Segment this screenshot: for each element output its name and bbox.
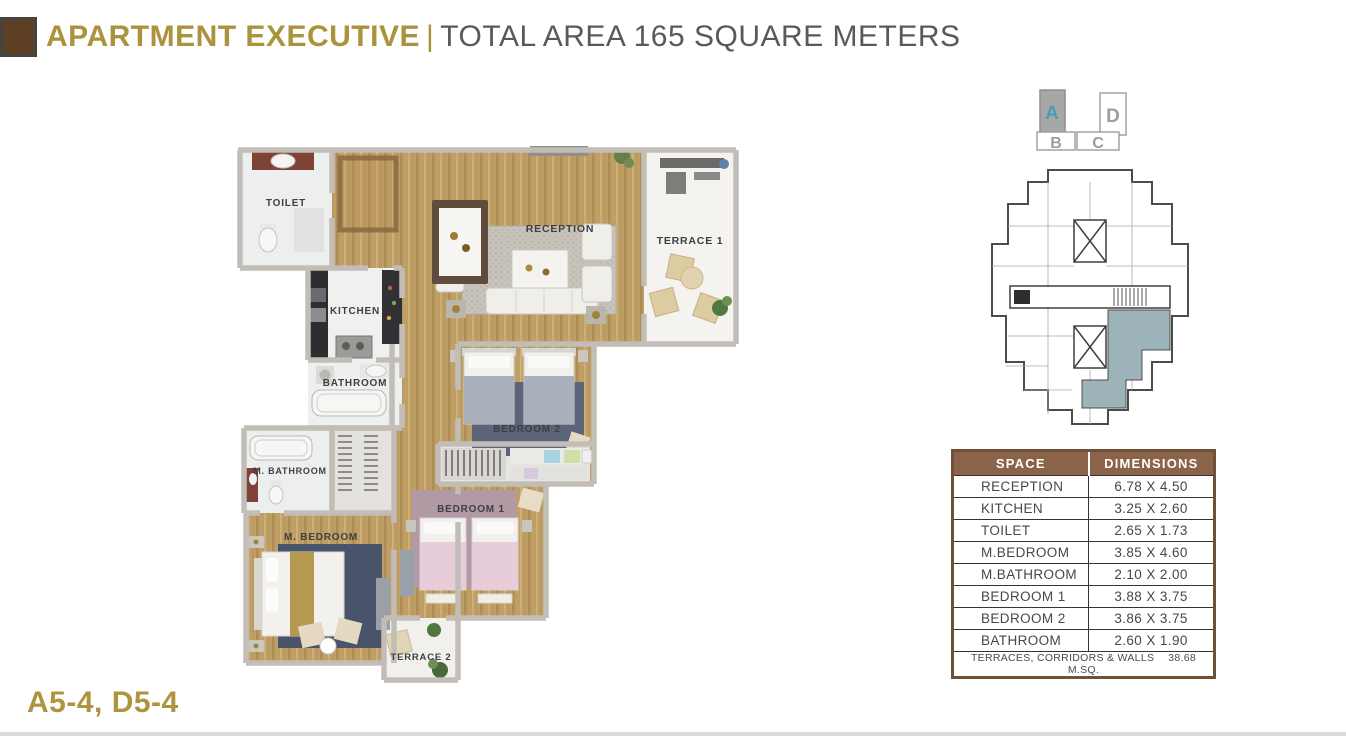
room-label-m-bedroom: M. BEDROOM: [284, 532, 358, 543]
title-separator: |: [420, 20, 440, 53]
room-label-m-bathroom: M. BATHROOM: [253, 466, 327, 476]
table-row: BEDROOM 1 3.88 X 3.75: [953, 586, 1215, 608]
room-label-toilet: TOILET: [266, 198, 306, 209]
dimensions-cell: 3.25 X 2.60: [1089, 498, 1215, 520]
dimensions-cell: 2.65 X 1.73: [1089, 520, 1215, 542]
room-label-kitchen: KITCHEN: [330, 306, 380, 317]
apartment-title: APARTMENT EXECUTIVE: [46, 20, 420, 53]
dimensions-cell: 6.78 X 4.50: [1089, 476, 1215, 498]
elevator-core-lower: [1074, 326, 1106, 368]
room-label-bathroom: BATHROOM: [323, 378, 388, 389]
building-floor-plate: [986, 166, 1196, 432]
unit-key-letter-d: D: [1106, 106, 1120, 127]
room-label-reception: RECEPTION: [526, 223, 594, 235]
room-label-bedroom2: BEDROOM 2: [493, 424, 561, 435]
room-label-terrace1: TERRACE 1: [657, 235, 724, 247]
table-row: BEDROOM 2 3.86 X 3.75: [953, 608, 1215, 630]
table-row: KITCHEN 3.25 X 2.60: [953, 498, 1215, 520]
page-title: APARTMENT EXECUTIVE|TOTAL AREA 165 SQUAR…: [46, 20, 961, 54]
dimensions-cell: 2.60 X 1.90: [1089, 630, 1215, 652]
header-space: SPACE: [953, 451, 1089, 476]
corridor-band: [1010, 286, 1170, 308]
unit-key-diagram: A D B C: [1030, 86, 1130, 152]
space-cell: BEDROOM 2: [953, 608, 1089, 630]
table-row: RECEPTION 6.78 X 4.50: [953, 476, 1215, 498]
dimensions-cell: 3.88 X 3.75: [1089, 586, 1215, 608]
unit-key-letter-c: C: [1092, 135, 1104, 152]
bottom-divider: [0, 732, 1346, 736]
apartment-floor-plan: TOILET KITCHEN BATHROOM RECEPTION TERRAC…: [224, 138, 740, 686]
space-cell: BEDROOM 1: [953, 586, 1089, 608]
footer-label: TERRACES, CORRIDORS & WALLS: [971, 652, 1154, 664]
table-footer-row: TERRACES, CORRIDORS & WALLS38.68 M.SQ.: [953, 652, 1215, 678]
table-row: TOILET 2.65 X 1.73: [953, 520, 1215, 542]
entry-hatch: [340, 158, 396, 230]
brand-square: [0, 17, 37, 57]
dimensions-cell: 3.85 X 4.60: [1089, 542, 1215, 564]
space-cell: RECEPTION: [953, 476, 1089, 498]
unit-key-letter-b: B: [1050, 135, 1062, 152]
elevator-core-upper: [1074, 220, 1106, 262]
room-label-terrace2: TERRACE 2: [390, 652, 451, 663]
space-cell: M.BATHROOM: [953, 564, 1089, 586]
space-cell: M.BEDROOM: [953, 542, 1089, 564]
dimensions-cell: 2.10 X 2.00: [1089, 564, 1215, 586]
space-cell: KITCHEN: [953, 498, 1089, 520]
space-cell: BATHROOM: [953, 630, 1089, 652]
table-row: M.BEDROOM 3.85 X 4.60: [953, 542, 1215, 564]
dimensions-cell: 3.86 X 3.75: [1089, 608, 1215, 630]
space-cell: TOILET: [953, 520, 1089, 542]
header-dimensions: DIMENSIONS: [1089, 451, 1215, 476]
wardrobe-shelves: [442, 448, 595, 480]
room-label-bedroom1: BEDROOM 1: [437, 504, 505, 515]
plan-code: A5-4, D5-4: [27, 686, 179, 720]
total-area-subtitle: TOTAL AREA 165 SQUARE METERS: [440, 20, 960, 53]
table-row: M.BATHROOM 2.10 X 2.00: [953, 564, 1215, 586]
table-row: BATHROOM 2.60 X 1.90: [953, 630, 1215, 652]
master-bedroom-furniture: [248, 536, 390, 654]
unit-key-letter-a: A: [1045, 103, 1059, 124]
dimensions-table: SPACE DIMENSIONS RECEPTION 6.78 X 4.50 K…: [951, 449, 1216, 679]
table-header-row: SPACE DIMENSIONS: [953, 451, 1215, 476]
